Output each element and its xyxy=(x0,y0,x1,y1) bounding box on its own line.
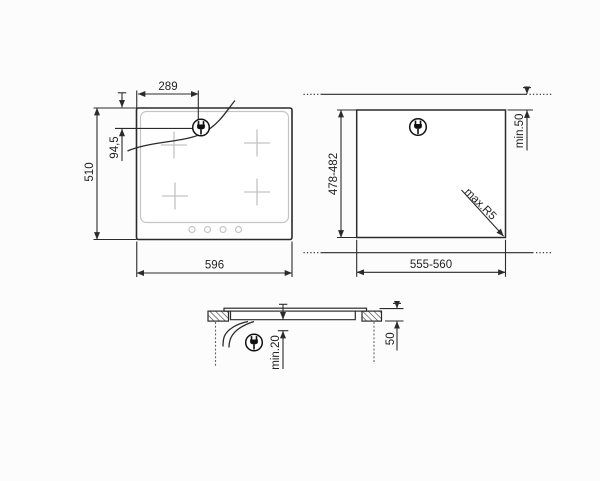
hob-tray-section xyxy=(231,311,356,320)
power-plug-icon xyxy=(193,119,210,136)
control-dot xyxy=(220,227,226,233)
dim-555-560-label: 555-560 xyxy=(410,259,452,271)
cutout-top-view: 478-482 555-560 min.50 max.R5 xyxy=(304,88,554,277)
installation-diagram-page: 289 94,5 510 596 xyxy=(0,0,600,481)
control-dot xyxy=(205,227,211,233)
dim-94-5-label: 94,5 xyxy=(109,136,121,158)
dim-289-label: 289 xyxy=(158,81,177,93)
hob-outline xyxy=(137,108,293,240)
cutout-rect xyxy=(357,110,506,238)
dim-50-label: 50 xyxy=(385,332,397,345)
worktop-left-block xyxy=(208,311,229,321)
dim-min-20-label: min.20 xyxy=(270,335,282,370)
hob-top-view: 289 94,5 510 596 xyxy=(84,81,292,277)
dim-510-label: 510 xyxy=(84,162,96,181)
dim-596-label: 596 xyxy=(205,259,224,271)
power-plug-icon xyxy=(410,119,427,136)
worktop-right-block xyxy=(362,311,382,321)
dim-510 xyxy=(94,108,137,240)
control-dot xyxy=(236,227,242,233)
worktop-section-view: min.20 50 xyxy=(208,303,404,369)
hob-glass-section xyxy=(224,308,367,311)
dim-min-50-label: min.50 xyxy=(514,114,526,149)
power-plug-icon xyxy=(246,334,263,351)
dim-478-482-label: 478-482 xyxy=(328,153,340,195)
dim-478-482 xyxy=(337,110,356,238)
installation-diagram: 289 94,5 510 596 xyxy=(0,0,600,481)
control-dot xyxy=(189,227,195,233)
